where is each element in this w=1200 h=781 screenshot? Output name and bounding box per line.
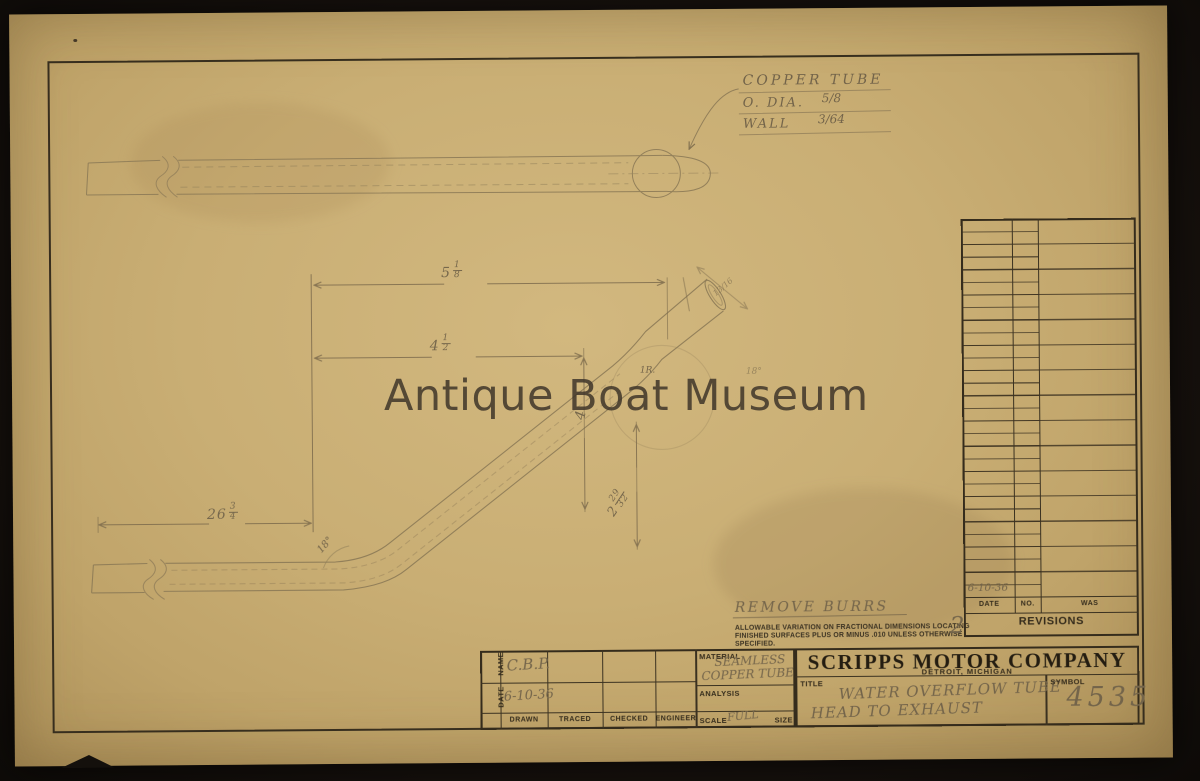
tb-date-value: 6-10-36 bbox=[503, 687, 554, 705]
revisions-rows-narrow bbox=[962, 219, 1041, 597]
tb-col-checked: CHECKED bbox=[603, 716, 656, 723]
dim-fraction: 18 bbox=[453, 261, 462, 281]
revision-entry-date: 6-10-36 bbox=[968, 582, 1009, 594]
note-remove-burrs: REMOVE BURRS bbox=[735, 599, 889, 616]
callout-od-label: O. DIA. bbox=[743, 95, 804, 110]
dim-whole: 26 bbox=[207, 507, 227, 523]
tb-col-drawn: DRAWN bbox=[501, 716, 548, 723]
dim-mid-length: 4 12 bbox=[430, 336, 451, 356]
dim-top-length: 5 18 bbox=[441, 263, 462, 283]
tb-title-label: TITLE bbox=[800, 679, 823, 688]
bent-tube-view bbox=[89, 278, 731, 600]
callout-wall-value: 3/64 bbox=[818, 112, 845, 126]
callout-wall-label: WALL bbox=[743, 116, 790, 131]
dimension-lines bbox=[96, 266, 907, 623]
dim-fraction: 12 bbox=[442, 334, 451, 354]
revisions-was-label: WAS bbox=[1041, 600, 1139, 608]
tb-col-traced: TRACED bbox=[548, 716, 603, 723]
tb-scale-label: SCALE bbox=[700, 716, 727, 725]
museum-watermark: Antique Boat Museum bbox=[384, 371, 869, 421]
tb-col-engineer: ENGINEER bbox=[656, 715, 696, 722]
tb-analysis-label: ANALYSIS bbox=[699, 689, 740, 698]
callout-title: COPPER TUBE bbox=[743, 72, 884, 89]
sheet-number: 2 bbox=[950, 613, 965, 639]
revisions-date-label: DATE bbox=[964, 601, 1015, 608]
tb-name-value: C.B.P. bbox=[506, 654, 550, 675]
dim-whole: 5 bbox=[441, 265, 451, 281]
tb-name-label: NAME bbox=[496, 652, 505, 676]
tb-symbol-value: 4535 bbox=[1066, 682, 1151, 714]
revisions-no-label: NO. bbox=[1015, 600, 1041, 607]
dim-fraction: 34 bbox=[229, 503, 238, 523]
revisions-title: REVISIONS bbox=[964, 615, 1139, 628]
dim-left-length: 26 34 bbox=[207, 505, 238, 525]
tolerance-note: ALLOWABLE VARIATION ON FRACTIONAL DIMENS… bbox=[735, 623, 971, 648]
tb-size-label: SIZE bbox=[775, 715, 793, 724]
dim-whole: 4 bbox=[430, 338, 440, 354]
callout-od-value: 5/8 bbox=[822, 91, 841, 105]
